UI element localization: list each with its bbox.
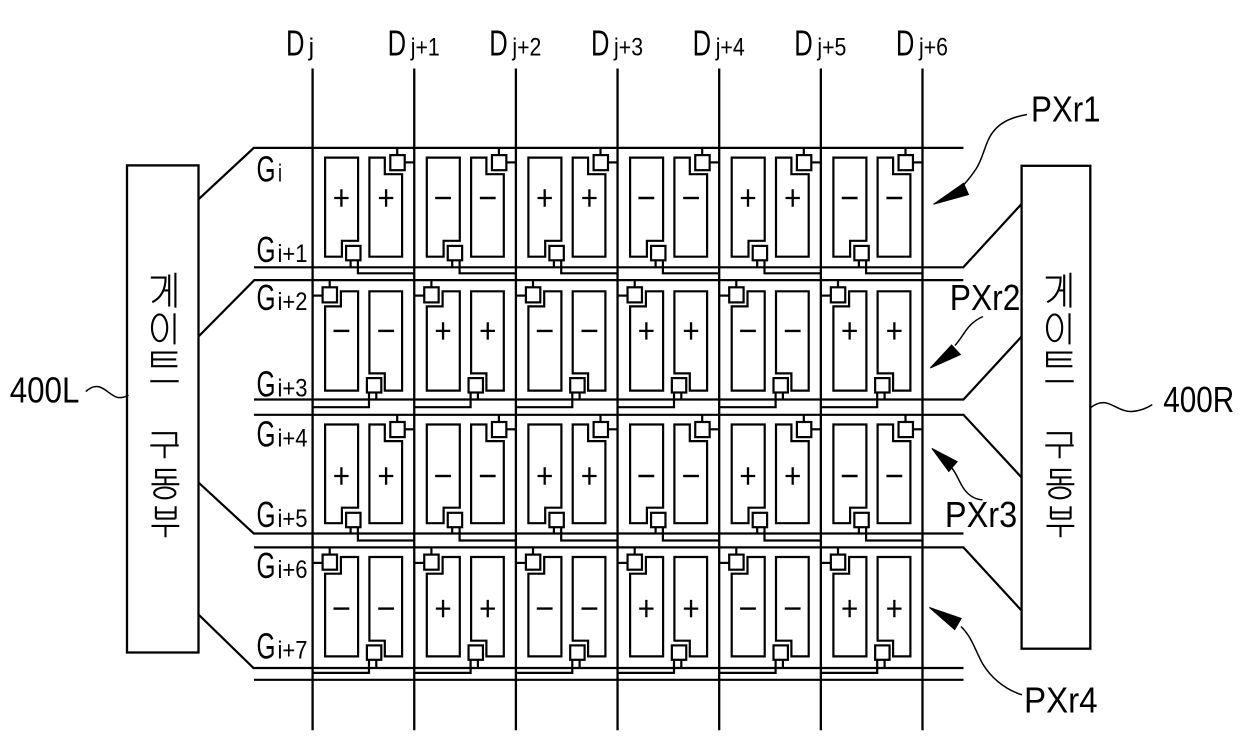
svg-text:PXr1: PXr1 [1031,89,1101,130]
svg-text:G: G [257,149,276,190]
svg-text:D: D [896,23,915,64]
svg-text:j+3: j+3 [613,34,643,62]
svg-text:400L: 400L [10,370,80,411]
svg-text:G: G [257,277,276,318]
svg-text:j+6: j+6 [918,34,948,62]
svg-text:i+3: i+3 [278,375,308,403]
svg-text:G: G [257,229,276,270]
svg-text:G: G [257,626,276,667]
svg-text:G: G [257,414,276,455]
svg-text:D: D [489,23,508,64]
svg-text:j+5: j+5 [816,34,846,62]
svg-text:D: D [286,23,305,64]
svg-text:j+1: j+1 [410,34,440,62]
svg-text:j+4: j+4 [715,34,745,62]
svg-text:G: G [257,364,276,405]
svg-text:i+7: i+7 [278,637,308,665]
svg-text:i: i [278,160,282,188]
svg-text:i+6: i+6 [278,556,308,584]
svg-text:G: G [257,545,276,586]
svg-text:i+4: i+4 [278,425,308,453]
svg-text:i+1: i+1 [278,240,308,268]
svg-text:D: D [794,23,813,64]
svg-text:i+2: i+2 [278,288,308,316]
svg-text:i+5: i+5 [278,505,308,533]
svg-text:j: j [308,34,314,62]
svg-text:400R: 400R [1163,379,1234,420]
svg-text:j+2: j+2 [512,34,542,62]
svg-text:PXr2: PXr2 [950,277,1021,318]
svg-text:G: G [257,494,276,535]
svg-text:PXr4: PXr4 [1024,680,1098,721]
svg-text:D: D [388,23,407,64]
svg-text:D: D [591,23,610,64]
svg-text:D: D [693,23,712,64]
